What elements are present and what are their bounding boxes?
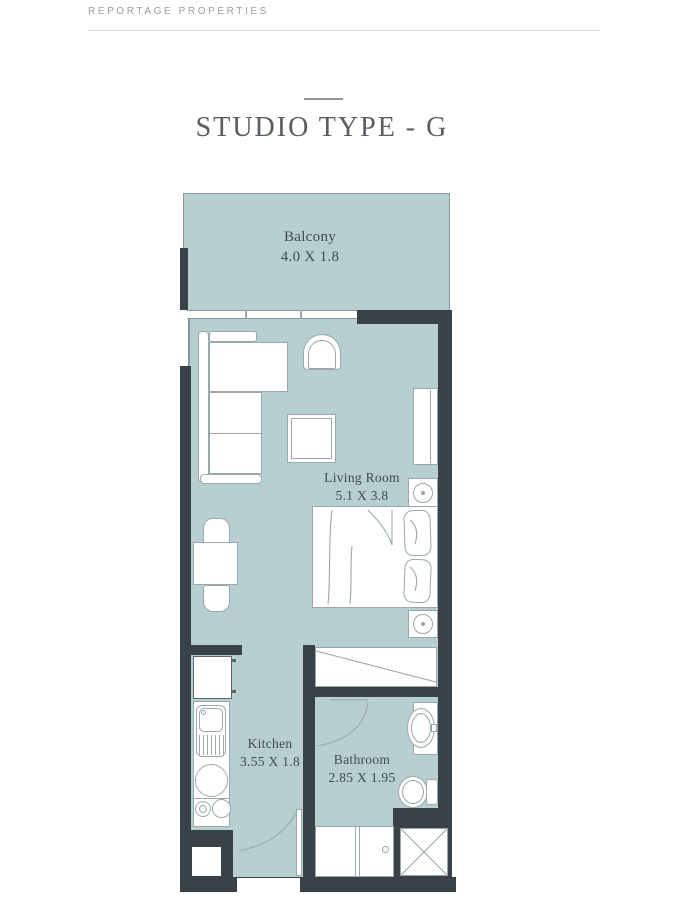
stove-burner-small-inner	[199, 805, 207, 813]
sofa-back	[198, 331, 209, 482]
sofa-chaise	[209, 342, 288, 392]
living-room-dims: 5.1 X 3.8	[292, 487, 432, 505]
bed-pillow	[403, 558, 432, 603]
bathroom-sink-inner	[411, 713, 431, 743]
shower-divider-line	[359, 826, 360, 877]
dining-chair	[203, 585, 230, 612]
living-room-label: Living Room 5.1 X 3.8	[292, 469, 432, 504]
balcony-dims: 4.0 X 1.8	[210, 248, 410, 268]
window-mullion	[300, 310, 302, 319]
kitchen-label: Kitchen 3.55 X 1.8	[218, 735, 322, 770]
wardrobe	[413, 388, 438, 465]
floor-plan: Balcony 4.0 X 1.8 Living Room 5.1 X 3.8 …	[180, 190, 456, 892]
entry-door-leaf	[296, 809, 302, 876]
wardrobe-door-line	[430, 390, 431, 463]
closet	[315, 647, 437, 687]
balcony-label: Balcony 4.0 X 1.8	[210, 228, 410, 267]
entry-threshold	[237, 878, 300, 892]
kitchen-name: Kitchen	[218, 735, 322, 753]
shower-drain	[382, 846, 389, 853]
coffee-table-inner	[291, 418, 332, 459]
wall-right	[438, 310, 452, 877]
wall-bathroom-top	[303, 687, 438, 697]
dining-chair	[203, 518, 230, 545]
sofa-cushion-line	[210, 433, 261, 434]
bathroom-name: Bathroom	[310, 751, 414, 769]
sofa-arm-bottom	[200, 474, 262, 484]
bathroom-dims: 2.85 X 1.95	[310, 769, 414, 787]
brand-divider-line	[88, 30, 600, 31]
nightstand-lamp-dot	[421, 622, 425, 626]
wall-kitchen-top	[180, 645, 242, 655]
duct-shaft	[192, 847, 221, 876]
balcony-window	[187, 310, 357, 319]
window-side-line	[188, 319, 190, 366]
wall-bottom	[180, 877, 456, 892]
fridge-hinge	[232, 659, 236, 662]
stove-burner-large	[212, 799, 231, 818]
shower-divider-line	[355, 826, 356, 877]
wall-balcony-left	[180, 248, 188, 310]
balcony-name: Balcony	[210, 228, 410, 248]
living-room-name: Living Room	[292, 469, 432, 487]
bed-pillow	[403, 510, 432, 557]
wall-left	[180, 366, 191, 877]
armchair-seat	[308, 340, 336, 369]
service-shaft	[400, 828, 448, 876]
bathroom-label: Bathroom 2.85 X 1.95	[310, 751, 414, 786]
kitchen-dims: 3.55 X 1.8	[218, 753, 322, 771]
kitchen-faucet	[201, 710, 206, 715]
bathroom-faucet	[431, 724, 437, 732]
wall-mid-lower	[303, 697, 315, 877]
dining-table	[193, 542, 238, 585]
page: REPORTAGE PROPERTIES STUDIO TYPE - G	[0, 0, 688, 900]
page-title: STUDIO TYPE - G	[122, 112, 522, 144]
sofa-arm-top	[209, 331, 257, 342]
fridge-hinge	[232, 690, 236, 693]
brand-name: REPORTAGE PROPERTIES	[88, 6, 269, 17]
fridge	[193, 656, 232, 699]
window-mullion	[245, 310, 247, 319]
title-dash	[304, 98, 343, 100]
toilet-tank	[426, 779, 438, 805]
